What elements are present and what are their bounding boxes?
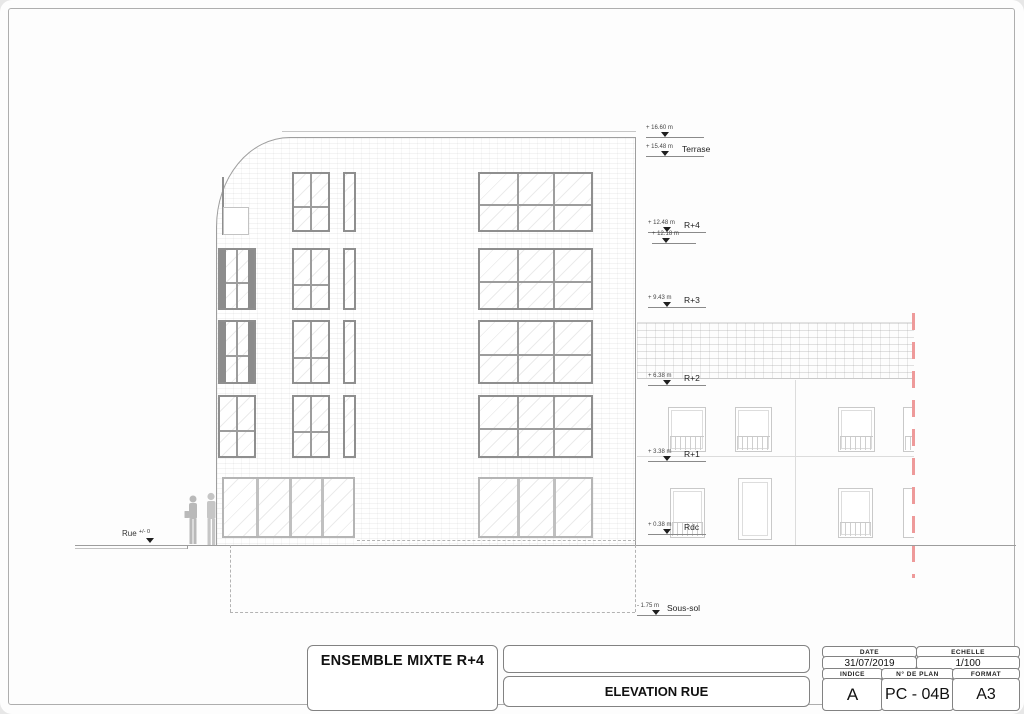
balcony-parapet: [223, 207, 249, 235]
window: [292, 248, 330, 310]
neighbour-window: [838, 407, 875, 452]
level-marker-top: + 16.60 m: [646, 125, 704, 138]
level-line: [646, 156, 704, 157]
window-mullion: [236, 322, 238, 382]
neighbour-window: [838, 488, 873, 538]
street-label: Rue +/- 0: [122, 529, 150, 538]
level-value: + 12.48 m: [648, 220, 675, 226]
level-marker-r2: + 6.38 m R+2: [648, 373, 706, 386]
window-glass: [345, 322, 354, 382]
window-transom: [294, 431, 328, 433]
balustrade: [737, 436, 770, 450]
window-transom: [480, 354, 591, 356]
window-transom: [480, 281, 591, 283]
level-marker-r4-slab: + 12.18 m: [652, 231, 696, 244]
level-marker-terrase: + 15.48 m Terrase: [646, 144, 704, 157]
window: [218, 395, 256, 458]
window-glass: [480, 479, 591, 536]
basement-outline: [230, 612, 635, 613]
window-transom: [226, 355, 248, 357]
window-glass: [480, 250, 591, 308]
window-large: [478, 248, 593, 310]
window-side-panel: [248, 250, 254, 308]
storefront-glazing: [222, 477, 355, 538]
window-large: [478, 320, 593, 384]
level-marker-r1: + 3.38 m R+1: [648, 449, 706, 462]
level-value: + 6.38 m: [648, 373, 672, 379]
window-large: [478, 172, 593, 232]
neighbour-window: [735, 407, 772, 452]
level-label: R+1: [684, 449, 700, 459]
window: [292, 172, 330, 232]
level-value: + 0.38 m: [648, 522, 672, 528]
window-mullion: [236, 397, 238, 456]
project-title: ENSEMBLE MIXTE R+4: [308, 646, 497, 669]
window-glass: [480, 322, 591, 382]
level-marker-soussol: - 1.75 m Sous-sol: [637, 603, 691, 616]
neighbour-party-wall-line: [795, 380, 796, 545]
property-limit-line: [912, 313, 915, 578]
window-mullion: [310, 397, 312, 456]
storefront-glazing: [478, 477, 593, 538]
balustrade: [840, 436, 873, 450]
level-label: R+3: [684, 295, 700, 305]
window-slit: [343, 248, 356, 310]
window: [292, 320, 330, 384]
level-value: + 9.43 m: [648, 295, 672, 301]
storefront-mullion: [553, 479, 556, 536]
level-value: + 3.38 m: [648, 449, 672, 455]
window-glass: [480, 174, 591, 230]
window: [292, 395, 330, 458]
level-line: [637, 615, 691, 616]
window-transom: [294, 206, 328, 208]
window-transom: [226, 282, 248, 284]
window-mullion: [310, 322, 312, 382]
level-label: Sous-sol: [667, 603, 700, 613]
window-mullion: [517, 397, 519, 456]
storefront-mullion: [256, 479, 259, 536]
level-label: R+4: [684, 220, 700, 230]
basement-outline: [230, 545, 231, 612]
parapet-line: [282, 131, 636, 132]
window-mullion: [553, 322, 555, 382]
window-mullion: [553, 397, 555, 456]
person-silhouettes: [184, 491, 222, 547]
window-large: [478, 395, 593, 458]
window: [218, 320, 256, 384]
window-transom: [294, 357, 328, 359]
level-label: Rdc: [684, 522, 699, 532]
level-value: + 12.18 m: [652, 231, 679, 237]
window-glass: [480, 397, 591, 456]
level-marker-r3: + 9.43 m R+3: [648, 295, 706, 308]
window-transom: [480, 428, 591, 430]
hidden-ground-line: [357, 540, 636, 541]
window-glass: [345, 250, 354, 308]
neighbour-window: [668, 407, 706, 452]
format-value: A3: [952, 678, 1020, 711]
window-slit: [343, 395, 356, 458]
storefront-mullion: [289, 479, 292, 536]
window-mullion: [553, 250, 555, 308]
drawing-sheet: Rue +/- 0 + 16.60 m + 15.48 m Terrase + …: [0, 0, 1024, 714]
window-slit: [343, 320, 356, 384]
neighbour-roof: [637, 322, 914, 379]
plan-number-value: PC - 04B: [881, 678, 954, 711]
level-label: Terrase: [682, 144, 710, 154]
level-label: R+2: [684, 373, 700, 383]
title-block-drawing: ELEVATION RUE: [503, 676, 810, 707]
neighbour-door: [738, 478, 772, 540]
door-panel: [742, 482, 768, 536]
drawing-title: ELEVATION RUE: [504, 677, 809, 706]
window-mullion: [517, 174, 519, 230]
window: [218, 248, 256, 310]
window-mullion: [517, 322, 519, 382]
window-mullion: [517, 250, 519, 308]
title-block-empty: [503, 645, 810, 673]
storefront-mullion: [517, 479, 520, 536]
level-value: - 1.75 m: [637, 603, 659, 609]
window-mullion: [553, 174, 555, 230]
balustrade: [670, 436, 704, 450]
level-line: [646, 137, 704, 138]
basement-outline: [635, 545, 636, 612]
window-mullion: [236, 250, 238, 308]
level-value: + 16.60 m: [646, 125, 673, 131]
window-mullion: [310, 174, 312, 230]
window-glass: [345, 174, 354, 230]
window-side-panel: [248, 322, 254, 382]
level-line: [648, 385, 706, 386]
index-value: A: [822, 678, 883, 711]
window-transom: [220, 430, 254, 432]
level-line: [648, 461, 706, 462]
storefront-mullion: [321, 479, 324, 536]
window-glass: [345, 397, 354, 456]
street-name: Rue: [122, 529, 137, 538]
window-slit: [343, 172, 356, 232]
title-block-project: ENSEMBLE MIXTE R+4: [307, 645, 498, 711]
level-line: [648, 534, 706, 535]
level-line: [648, 307, 706, 308]
sidewalk-line: [75, 548, 187, 549]
street-level-value: +/- 0: [139, 529, 150, 535]
level-line: [652, 243, 696, 244]
window-transom: [294, 284, 328, 286]
balustrade: [840, 522, 871, 536]
window-mullion: [310, 250, 312, 308]
level-triangle-icon: [146, 538, 154, 543]
level-marker-rdc: + 0.38 m Rdc: [648, 522, 706, 535]
level-value: + 15.48 m: [646, 144, 673, 150]
window-transom: [480, 204, 591, 206]
